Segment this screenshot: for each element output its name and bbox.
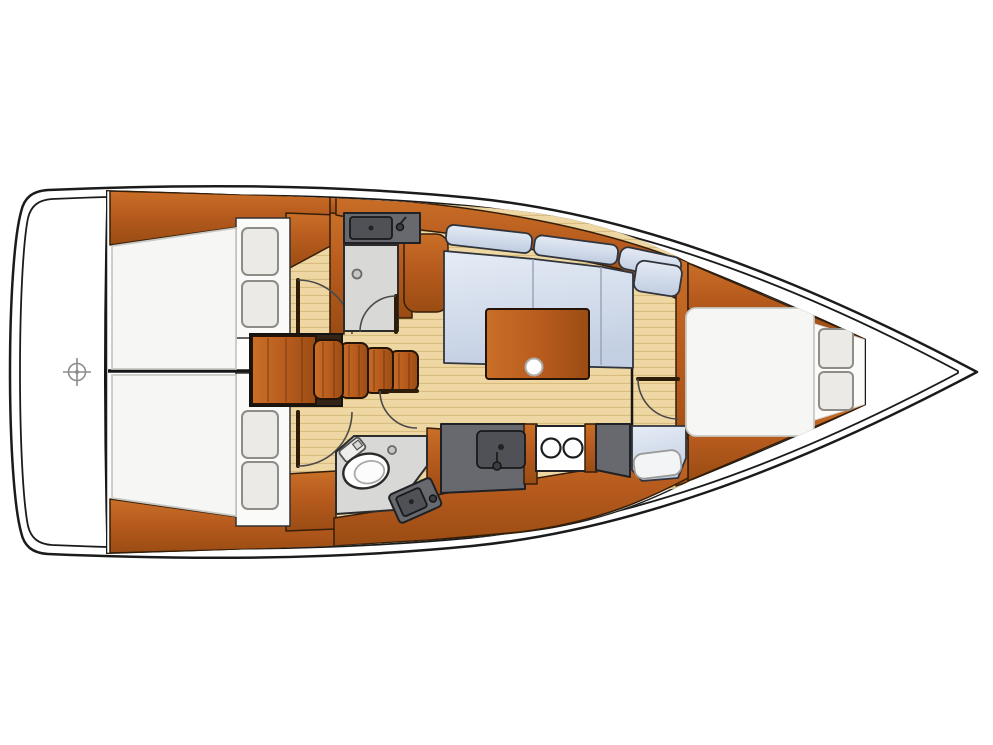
burner-icon <box>564 439 583 458</box>
pillow <box>819 329 853 368</box>
seat-cushion <box>633 449 683 480</box>
aft-starboard-alcove-wall <box>286 471 336 531</box>
galley-counter-fwd <box>596 424 630 477</box>
settee-end-cabinet <box>404 234 448 312</box>
pillow <box>242 411 278 458</box>
floor-drain-icon <box>388 446 396 454</box>
sink-drain <box>369 226 374 231</box>
floor-plan <box>0 0 993 745</box>
shower-drain-icon <box>353 270 362 279</box>
double-berth <box>112 375 236 516</box>
head-left-strip <box>330 213 344 334</box>
nav-seat <box>632 426 686 481</box>
salon-table <box>486 309 589 379</box>
end-cushion <box>633 260 683 298</box>
companionway-step <box>390 351 418 391</box>
companionway-step <box>365 348 393 393</box>
floor-plan-canvas <box>0 0 993 745</box>
sink-drain <box>498 444 504 450</box>
burner-icon <box>542 439 561 458</box>
mast-post <box>526 359 543 376</box>
v-berth <box>686 308 814 436</box>
shower-floor <box>344 245 398 331</box>
faucet-icon <box>397 224 404 231</box>
double-berth <box>112 228 236 369</box>
pillow <box>819 372 853 410</box>
pillow <box>242 228 278 275</box>
faucet-icon <box>493 462 501 470</box>
companionway-step <box>340 343 368 398</box>
pillow <box>242 462 278 509</box>
pillow <box>242 281 278 327</box>
companionway-step <box>314 340 343 399</box>
engine-box <box>252 336 316 404</box>
